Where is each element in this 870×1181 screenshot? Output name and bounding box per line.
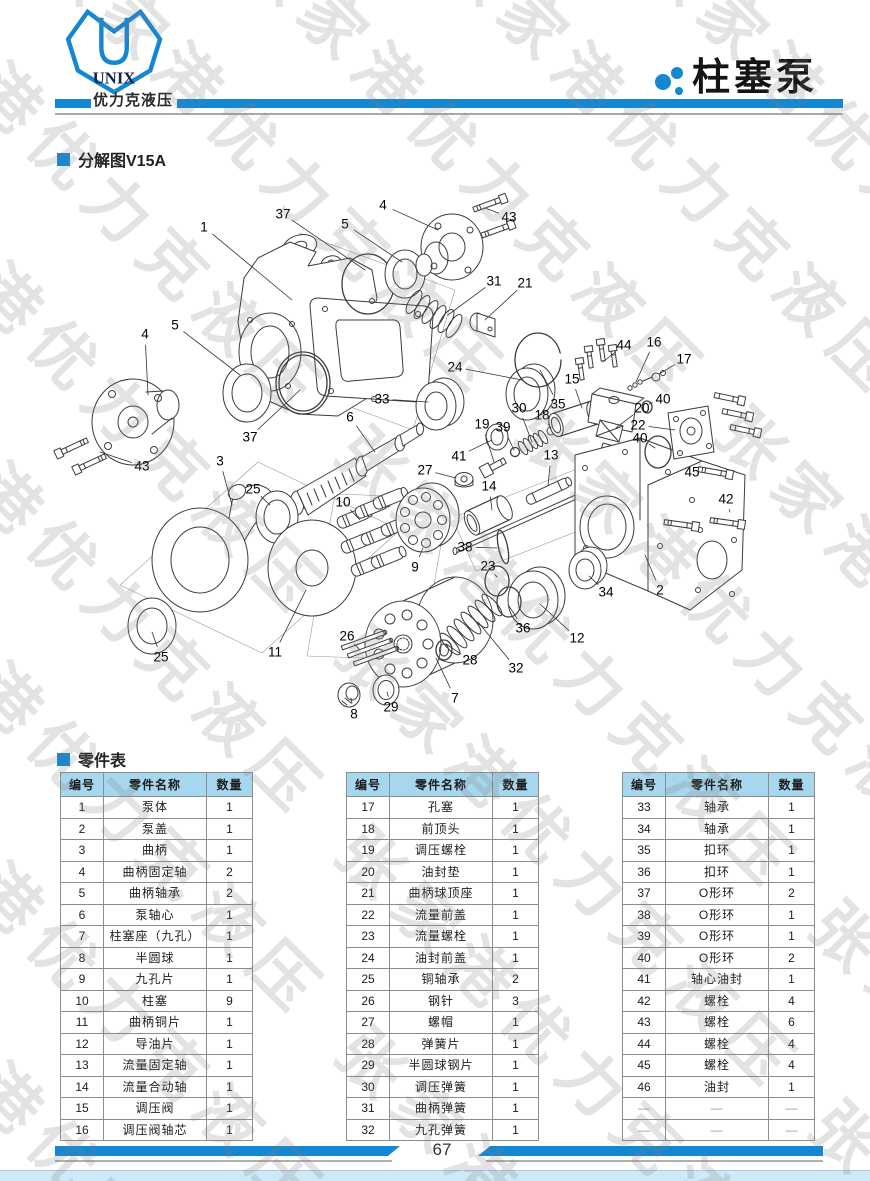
column-header: 数量 — [493, 773, 539, 797]
part-callout: 15 — [564, 372, 579, 387]
part-qty: 1 — [493, 1055, 539, 1077]
part-callout: 21 — [517, 276, 532, 291]
part-qty: 4 — [769, 1033, 815, 1055]
part-callout: 31 — [486, 274, 501, 289]
part-callout: 18 — [534, 408, 549, 423]
part-callout: 4 — [379, 198, 387, 213]
part-name: 油封前盖 — [390, 947, 493, 969]
part-callout: 43 — [501, 210, 516, 225]
part-qty: 1 — [207, 1055, 253, 1077]
table-row: 12导油片1 — [61, 1033, 253, 1055]
part-number: 8 — [61, 947, 104, 969]
section-bullet-icon — [57, 153, 70, 166]
part-name: 流量固定轴 — [104, 1055, 207, 1077]
part-callout: 23 — [480, 559, 495, 574]
table-row: 32九孔弹簧1 — [347, 1119, 539, 1141]
part-qty: 1 — [207, 1033, 253, 1055]
part-callout: 27 — [417, 463, 432, 478]
ball-seat-21 — [470, 313, 495, 337]
part-number: 7 — [61, 926, 104, 948]
table-row: 40O形环2 — [623, 947, 815, 969]
parts-table-1: 编号零件名称数量1泵体12泵盖13曲柄14曲柄固定轴25曲柄轴承26泵轴心17柱… — [60, 772, 253, 1141]
table-row: 19调压螺栓1 — [347, 840, 539, 862]
table-row: 22流量前盖1 — [347, 904, 539, 926]
part-qty: — — [769, 1119, 815, 1141]
bolt-19 — [479, 455, 508, 478]
part-name: 弹簧片 — [390, 1033, 493, 1055]
part-number: 33 — [623, 797, 666, 819]
front-flange-4-top — [416, 214, 483, 280]
part-qty: 1 — [493, 1033, 539, 1055]
part-qty: 1 — [493, 861, 539, 883]
part-callout: 16 — [646, 335, 661, 350]
table-row: 45螺栓4 — [623, 1055, 815, 1077]
part-name: 前顶头 — [390, 818, 493, 840]
part-callout: 20 — [634, 401, 649, 416]
part-number: 28 — [347, 1033, 390, 1055]
header-underline — [55, 113, 843, 115]
part-name: 扣环 — [666, 840, 769, 862]
column-header: 数量 — [207, 773, 253, 797]
part-qty: 1 — [493, 1076, 539, 1098]
exploded-diagram: 1375443312154243363734325104127193930153… — [40, 180, 785, 740]
half-ball-8 — [338, 683, 360, 707]
part-qty: 1 — [769, 1076, 815, 1098]
part-callout: 40 — [632, 431, 647, 446]
part-callout: 2 — [656, 583, 664, 598]
part-number: 15 — [61, 1098, 104, 1120]
part-qty: 6 — [769, 1012, 815, 1034]
part-name: 油封垫 — [390, 861, 493, 883]
table-row: 13流量固定轴1 — [61, 1055, 253, 1077]
part-callout: 39 — [495, 420, 510, 435]
part-number: 25 — [347, 969, 390, 991]
callout-leader — [184, 332, 240, 375]
part-name: 泵轴心 — [104, 904, 207, 926]
part-number: 10 — [61, 990, 104, 1012]
part-number: 13 — [61, 1055, 104, 1077]
part-name: 螺帽 — [390, 1012, 493, 1034]
part-qty: 1 — [769, 818, 815, 840]
table-row: 46油封1 — [623, 1076, 815, 1098]
part-callout: 37 — [275, 207, 290, 222]
table-row: 36扣环1 — [623, 861, 815, 883]
part-qty: 1 — [493, 947, 539, 969]
part-qty: 2 — [207, 861, 253, 883]
part-callout: 6 — [346, 410, 354, 425]
part-number: 11 — [61, 1012, 104, 1034]
table-row: 24油封前盖1 — [347, 947, 539, 969]
table-row: 6泵轴心1 — [61, 904, 253, 926]
part-qty: 1 — [207, 969, 253, 991]
table-row: 31曲柄弹簧1 — [347, 1098, 539, 1120]
part-qty: 2 — [769, 883, 815, 905]
part-name: 导油片 — [104, 1033, 207, 1055]
part-name: O形环 — [666, 926, 769, 948]
header-bar-left — [55, 99, 91, 108]
bolts-45 — [714, 391, 762, 438]
table-row: 3曲柄1 — [61, 840, 253, 862]
part-number: 43 — [623, 1012, 666, 1034]
parts-table-3: 编号零件名称数量33轴承134轴承135扣环136扣环137O形环238O形环1… — [622, 772, 815, 1141]
part-name: 曲柄固定轴 — [104, 861, 207, 883]
part-qty: 1 — [493, 883, 539, 905]
part-name: 调压弹簧 — [390, 1076, 493, 1098]
table-row: 28弹簧片1 — [347, 1033, 539, 1055]
part-number: 38 — [623, 904, 666, 926]
table-row: 34轴承1 — [623, 818, 815, 840]
oring-38 — [495, 529, 511, 564]
part-qty: 1 — [207, 904, 253, 926]
part-qty: 2 — [207, 883, 253, 905]
column-header: 编号 — [61, 773, 104, 797]
part-name: 调压阀轴芯 — [104, 1119, 207, 1141]
callout-leader — [354, 230, 402, 262]
part-callout: 32 — [508, 661, 523, 676]
part-callout: 28 — [462, 653, 477, 668]
column-header: 数量 — [769, 773, 815, 797]
table-row: 35扣环1 — [623, 840, 815, 862]
part-qty: 1 — [769, 840, 815, 862]
table-row: 30调压弹簧1 — [347, 1076, 539, 1098]
part-name: 调压阀 — [104, 1098, 207, 1120]
part-number: 44 — [623, 1033, 666, 1055]
part-number: 16 — [61, 1119, 104, 1141]
unix-logo: UNIX — [58, 6, 176, 96]
callout-leader — [636, 352, 649, 382]
part-number: 42 — [623, 990, 666, 1012]
part-callout: 1 — [200, 220, 208, 235]
nut-27 — [455, 473, 473, 488]
part-callout: 42 — [718, 492, 733, 507]
part-number: 36 — [623, 861, 666, 883]
table-row: 41轴心油封1 — [623, 969, 815, 991]
part-callout: 41 — [451, 449, 466, 464]
part-number: 1 — [61, 797, 104, 819]
part-qty: — — [769, 1098, 815, 1120]
oring-39 — [511, 448, 520, 457]
part-name: 调压螺栓 — [390, 840, 493, 862]
part-name: 曲柄弹簧 — [390, 1098, 493, 1120]
part-name: 油封 — [666, 1076, 769, 1098]
part-name: 半圆球 — [104, 947, 207, 969]
part-name: 流量合动轴 — [104, 1076, 207, 1098]
part-qty: 2 — [769, 947, 815, 969]
callout-leader — [548, 466, 550, 486]
table-row: 21曲柄球顶座1 — [347, 883, 539, 905]
table-row: 15调压阀1 — [61, 1098, 253, 1120]
callout-leader — [393, 210, 438, 230]
part-callout: 37 — [242, 430, 257, 445]
part-callout: 24 — [447, 360, 463, 375]
part-qty: 1 — [493, 1119, 539, 1141]
part-callout: 25 — [153, 650, 168, 665]
part-number: 19 — [347, 840, 390, 862]
callout-leader — [485, 208, 499, 213]
part-number: 29 — [347, 1055, 390, 1077]
part-callout: 35 — [550, 397, 565, 412]
company-name: 优力克液压 — [93, 89, 173, 110]
part-name: 九孔弹簧 — [390, 1119, 493, 1141]
table-row: 11曲柄铜片1 — [61, 1012, 253, 1034]
part-callout: 3 — [216, 454, 224, 469]
part-name: O形环 — [666, 947, 769, 969]
part-number: 26 — [347, 990, 390, 1012]
table-row: 8半圆球1 — [61, 947, 253, 969]
table-row: 42螺栓4 — [623, 990, 815, 1012]
table-row: 33轴承1 — [623, 797, 815, 819]
table-row: 17孔塞1 — [347, 797, 539, 819]
part-name: 轴承 — [666, 818, 769, 840]
section-title-text: 零件表 — [78, 747, 126, 771]
part-name: 扣环 — [666, 861, 769, 883]
part-callout: 26 — [339, 629, 354, 644]
ball-17 — [652, 371, 666, 382]
thrust-plate-11 — [268, 520, 356, 616]
part-qty: 9 — [207, 990, 253, 1012]
part-callout: 44 — [616, 338, 632, 353]
footer-bar-left — [55, 1146, 400, 1156]
callout-leader — [448, 288, 485, 315]
part-qty: 1 — [769, 904, 815, 926]
part-qty: 1 — [207, 797, 253, 819]
part-number: — — [623, 1119, 666, 1141]
part-qty: 1 — [493, 904, 539, 926]
part-name: 柱塞座（九孔） — [104, 926, 207, 948]
bearing-25-b — [128, 598, 176, 654]
part-number: 21 — [347, 883, 390, 905]
part-number: 12 — [61, 1033, 104, 1055]
section-title-text: 分解图V15A — [78, 147, 166, 171]
part-number: 31 — [347, 1098, 390, 1120]
part-number: 32 — [347, 1119, 390, 1141]
part-number: 3 — [61, 840, 104, 862]
page: 张家港优力克液压 张家港优力克液压 张家港优力克液压 张家港优力克液压 张家港优… — [0, 0, 870, 1181]
footer-bar-right — [478, 1146, 823, 1156]
footer-line-left — [55, 1160, 392, 1162]
table-header-row: 编号零件名称数量 — [347, 773, 539, 797]
part-name: 铜轴承 — [390, 969, 493, 991]
part-qty: 1 — [207, 1076, 253, 1098]
page-number: 67 — [414, 1140, 470, 1160]
part-qty: 1 — [207, 818, 253, 840]
part-name: 曲柄球顶座 — [390, 883, 493, 905]
part-number: 20 — [347, 861, 390, 883]
table-header-row: 编号零件名称数量 — [623, 773, 815, 797]
part-callout: 34 — [598, 585, 614, 600]
part-callout: 38 — [457, 540, 472, 555]
logo-text: UNIX — [93, 68, 136, 87]
part-name: O形环 — [666, 883, 769, 905]
callout-leader — [508, 437, 514, 450]
part-qty: 1 — [207, 1098, 253, 1120]
part-name: 螺栓 — [666, 990, 769, 1012]
part-name: — — [666, 1098, 769, 1120]
part-number: 41 — [623, 969, 666, 991]
part-callout: 45 — [684, 465, 699, 480]
bolts-44 — [575, 339, 619, 381]
section-title-exploded: 分解图V15A — [57, 147, 166, 171]
table-row: 39O形环1 — [623, 926, 815, 948]
column-header: 编号 — [347, 773, 390, 797]
part-number: 45 — [623, 1055, 666, 1077]
callout-leader — [495, 575, 497, 577]
parts-table-2: 编号零件名称数量17孔塞118前顶头119调压螺栓120油封垫121曲柄球顶座1… — [346, 772, 539, 1141]
part-name: 钢针 — [390, 990, 493, 1012]
part-callout: 40 — [655, 392, 670, 407]
table-row: 4曲柄固定轴2 — [61, 861, 253, 883]
part-name: 曲柄轴承 — [104, 883, 207, 905]
callout-leader — [436, 473, 456, 478]
part-qty: 1 — [493, 818, 539, 840]
part-callout: 29 — [383, 700, 398, 715]
table-row: 27螺帽1 — [347, 1012, 539, 1034]
table-row: 5曲柄轴承2 — [61, 883, 253, 905]
part-number: 37 — [623, 883, 666, 905]
table-row: 38O形环1 — [623, 904, 815, 926]
part-number: — — [623, 1098, 666, 1120]
bearing-5-left — [223, 364, 271, 422]
part-number: 22 — [347, 904, 390, 926]
valve-cylinder-14 — [461, 493, 515, 537]
column-header: 零件名称 — [390, 773, 493, 797]
part-number: 14 — [61, 1076, 104, 1098]
part-name: 曲柄 — [104, 840, 207, 862]
table-row: 44螺栓4 — [623, 1033, 815, 1055]
parts-table-container-2: 编号零件名称数量17孔塞118前顶头119调压螺栓120油封垫121曲柄球顶座1… — [346, 772, 539, 1141]
part-name: 流量前盖 — [390, 904, 493, 926]
column-header: 零件名称 — [104, 773, 207, 797]
part-qty: 4 — [769, 990, 815, 1012]
part-qty: 1 — [207, 926, 253, 948]
part-number: 35 — [623, 840, 666, 862]
part-number: 34 — [623, 818, 666, 840]
product-title: 柱塞泵 — [692, 46, 818, 101]
part-callout: 5 — [171, 318, 179, 333]
callout-leader — [659, 365, 675, 374]
part-name: 流量螺栓 — [390, 926, 493, 948]
part-name: 半圆球钢片 — [390, 1055, 493, 1077]
section-bullet-icon — [57, 753, 70, 766]
parts-table-container-1: 编号零件名称数量1泵体12泵盖13曲柄14曲柄固定轴25曲柄轴承26泵轴心17柱… — [60, 772, 253, 1141]
table-row: 23流量螺栓1 — [347, 926, 539, 948]
part-callout: 13 — [543, 448, 558, 463]
part-callout: 43 — [134, 459, 149, 474]
part-callout: 7 — [451, 691, 459, 706]
column-header: 编号 — [623, 773, 666, 797]
part-callout: 12 — [569, 631, 584, 646]
part-qty: 1 — [493, 926, 539, 948]
table-row: 26钢针3 — [347, 990, 539, 1012]
table-row: 14流量合动轴1 — [61, 1076, 253, 1098]
title-dots-icon — [645, 52, 691, 98]
part-qty: 1 — [493, 840, 539, 862]
table-row: 29半圆球钢片1 — [347, 1055, 539, 1077]
part-callout: 4 — [141, 327, 149, 342]
table-row: 7柱塞座（九孔）1 — [61, 926, 253, 948]
part-number: 30 — [347, 1076, 390, 1098]
part-number: 2 — [61, 818, 104, 840]
part-name: 泵体 — [104, 797, 207, 819]
bottom-strip — [0, 1170, 870, 1181]
front-flange-4-left — [92, 379, 179, 465]
flow-cover-22 — [668, 406, 714, 459]
pin-16 — [628, 377, 652, 390]
part-number: 27 — [347, 1012, 390, 1034]
part-callout: 11 — [268, 645, 282, 660]
part-number: 23 — [347, 926, 390, 948]
part-callout: 17 — [676, 352, 691, 367]
parts-table-container-3: 编号零件名称数量33轴承134轴承135扣环136扣环137O形环238O形环1… — [622, 772, 815, 1141]
part-number: 40 — [623, 947, 666, 969]
part-callout: 30 — [511, 401, 526, 416]
part-name: O形环 — [666, 904, 769, 926]
part-qty: 1 — [493, 1012, 539, 1034]
footer-line-right — [486, 1160, 823, 1162]
part-name: 九孔片 — [104, 969, 207, 991]
part-callout: 10 — [335, 495, 350, 510]
part-number: 46 — [623, 1076, 666, 1098]
part-qty: 1 — [493, 1098, 539, 1120]
table-row: 10柱塞9 — [61, 990, 253, 1012]
table-row: 20油封垫1 — [347, 861, 539, 883]
part-number: 5 — [61, 883, 104, 905]
part-qty: 1 — [769, 926, 815, 948]
part-number: 39 — [623, 926, 666, 948]
table-row: 16调压阀轴芯1 — [61, 1119, 253, 1141]
part-qty: 1 — [493, 797, 539, 819]
part-callout: 14 — [481, 479, 497, 494]
table-row: 37O形环2 — [623, 883, 815, 905]
table-row: 9九孔片1 — [61, 969, 253, 991]
part-qty: 2 — [493, 969, 539, 991]
part-callout: 8 — [350, 707, 358, 722]
part-name: 轴承 — [666, 797, 769, 819]
part-number: 4 — [61, 861, 104, 883]
part-qty: 1 — [769, 969, 815, 991]
part-callout: 19 — [474, 417, 489, 432]
part-qty: 1 — [769, 797, 815, 819]
part-qty: 4 — [769, 1055, 815, 1077]
part-name: — — [666, 1119, 769, 1141]
part-callout: 36 — [515, 621, 530, 636]
part-callout: 9 — [411, 560, 419, 575]
part-qty: 1 — [207, 947, 253, 969]
column-header: 零件名称 — [666, 773, 769, 797]
callout-leader — [476, 547, 497, 548]
callout-leader — [485, 290, 517, 320]
part-qty: 1 — [207, 1119, 253, 1141]
table-row: 43螺栓6 — [623, 1012, 815, 1034]
table-row: 25铜轴承2 — [347, 969, 539, 991]
part-number: 17 — [347, 797, 390, 819]
part-number: 18 — [347, 818, 390, 840]
table-row: 2泵盖1 — [61, 818, 253, 840]
part-callout: 33 — [374, 392, 389, 407]
table-row: 1泵体1 — [61, 797, 253, 819]
table-row: ——— — [623, 1119, 815, 1141]
table-row: ——— — [623, 1098, 815, 1120]
part-callout: 25 — [245, 482, 260, 497]
part-name: 柱塞 — [104, 990, 207, 1012]
section-title-parts: 零件表 — [57, 747, 126, 771]
part-callout: 5 — [341, 217, 349, 232]
part-name: 螺栓 — [666, 1033, 769, 1055]
part-name: 曲柄铜片 — [104, 1012, 207, 1034]
part-number: 24 — [347, 947, 390, 969]
table-header-row: 编号零件名称数量 — [61, 773, 253, 797]
part-number: 6 — [61, 904, 104, 926]
